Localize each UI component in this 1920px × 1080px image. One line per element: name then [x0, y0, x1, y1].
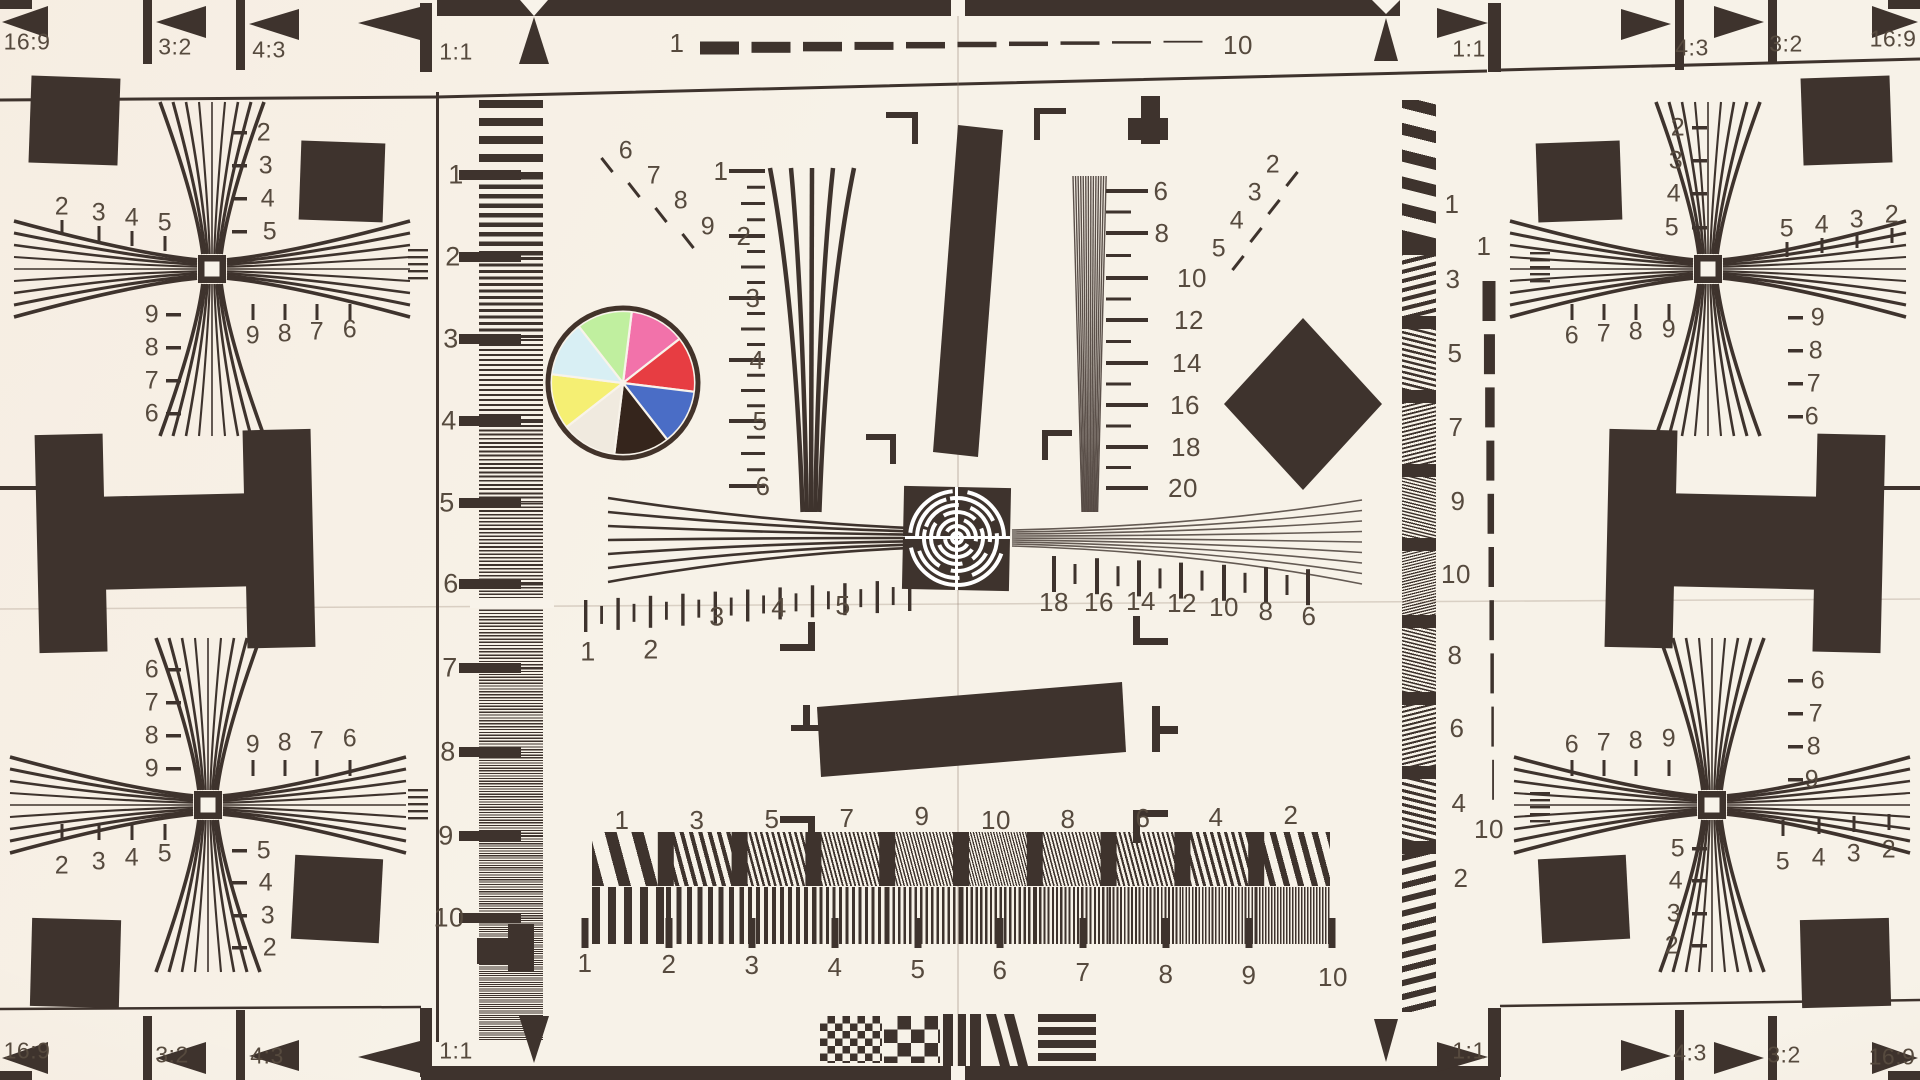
scale-label: 8 — [1155, 220, 1170, 246]
scale-label: 7 — [840, 805, 855, 831]
scale-label: 6 — [1154, 178, 1169, 204]
scale-label: 2 — [1885, 203, 1899, 228]
scale-label: 18 — [1171, 434, 1201, 460]
scale-label: 9 — [246, 733, 260, 758]
scale-label: 2 — [737, 223, 752, 249]
scale-label: 3:2 — [1769, 33, 1802, 56]
scale-label: 5 — [1212, 237, 1226, 262]
scale-label: 3 — [745, 952, 760, 978]
scale-label: 8 — [1448, 642, 1463, 668]
scale-label: 3 — [1847, 842, 1861, 867]
scale-label: 8 — [1061, 806, 1076, 832]
scale-label: 9 — [915, 803, 930, 829]
scale-label: 9 — [438, 823, 454, 850]
scale-label: 10 — [1223, 32, 1253, 58]
scale-label: 16 — [1170, 392, 1200, 418]
scale-label: 2 — [662, 951, 677, 977]
scale-label: 4 — [1812, 846, 1826, 871]
scale-label: 5 — [1671, 837, 1685, 862]
scale-label: 4:3 — [1673, 1042, 1706, 1065]
scale-label: 4 — [261, 187, 275, 212]
scale-label: 7 — [1809, 702, 1823, 727]
scale-label: 2 — [643, 637, 659, 664]
scale-label: 8 — [278, 731, 292, 756]
scale-label: 8 — [1259, 598, 1274, 624]
scale-label: 10 — [1177, 265, 1207, 291]
resolution-test-chart-photo: 1234567891012345668101214161820123451816… — [0, 0, 1920, 1080]
scale-label: 1 — [714, 158, 729, 184]
scale-label: 8 — [1807, 735, 1821, 760]
scale-label: 5 — [158, 842, 172, 867]
scale-label: 3 — [92, 850, 106, 875]
scale-label: 2 — [1454, 865, 1469, 891]
scale-label: 4 — [441, 408, 457, 435]
scale-label: 6 — [443, 571, 459, 598]
scale-label: 6 — [1302, 603, 1317, 629]
scale-label: 4:3 — [250, 1045, 283, 1068]
scale-label: 5 — [753, 408, 768, 434]
scale-label: 4 — [125, 846, 139, 871]
scale-label: 5 — [1780, 217, 1794, 242]
scale-label: 7 — [1597, 731, 1611, 756]
scale-label: 4 — [1667, 182, 1681, 207]
scale-label: 2 — [263, 936, 277, 961]
scale-label: 5 — [911, 956, 926, 982]
scale-label: 2 — [1671, 116, 1685, 141]
scale-label: 5 — [257, 839, 271, 864]
scale-label: 10 — [1318, 964, 1348, 990]
scale-label: 1 — [615, 807, 630, 833]
scale-label: 4 — [1209, 804, 1224, 830]
scale-label: 3 — [709, 604, 725, 631]
scale-label: 1 — [1477, 233, 1492, 259]
scale-label: 9 — [1811, 306, 1825, 331]
scale-label: 6 — [619, 139, 633, 164]
scale-label: 7 — [310, 320, 324, 345]
scale-label: 5 — [263, 220, 277, 245]
scale-label: 1:1 — [1452, 1040, 1485, 1063]
scale-label: 7 — [1807, 372, 1821, 397]
scale-label: 4 — [771, 595, 787, 622]
scale-label: 6 — [1811, 669, 1825, 694]
scale-label: 10 — [981, 807, 1011, 833]
scale-label: 8 — [1809, 339, 1823, 364]
scale-label: 7 — [1449, 414, 1464, 440]
scale-label: 3 — [1446, 266, 1461, 292]
scale-label: 5 — [835, 593, 851, 620]
scale-label: 10 — [433, 905, 464, 932]
scale-label: 9 — [145, 757, 159, 782]
scale-label: 2 — [55, 195, 69, 220]
scale-label: 7 — [145, 691, 159, 716]
scale-label: 4:3 — [1675, 37, 1708, 60]
scale-label: 16:9 — [4, 31, 51, 54]
scale-label: 1 — [578, 950, 593, 976]
scale-label: 7 — [1597, 322, 1611, 347]
scale-label: 3 — [259, 154, 273, 179]
scale-label: 1 — [1445, 191, 1460, 217]
scale-label: 14 — [1126, 588, 1156, 614]
scale-label: 1 — [580, 639, 596, 666]
scale-label: 3 — [690, 807, 705, 833]
scale-label: 9 — [1805, 768, 1819, 793]
scale-label: 2 — [1882, 838, 1896, 863]
scale-label: 6 — [1136, 805, 1151, 831]
scale-label: 7 — [145, 369, 159, 394]
scale-label: 3 — [1248, 181, 1262, 206]
scale-label: 6 — [1565, 733, 1579, 758]
scale-label: 14 — [1172, 350, 1202, 376]
scale-label: 3:2 — [155, 1044, 188, 1067]
scale-label: 7 — [310, 729, 324, 754]
scale-label: 2 — [1284, 802, 1299, 828]
scale-label: 8 — [1629, 320, 1643, 345]
scale-label: 7 — [647, 164, 661, 189]
scale-label: 5 — [158, 211, 172, 236]
scale-label: 9 — [246, 324, 260, 349]
scale-label: 18 — [1039, 589, 1069, 615]
scale-label: 4 — [125, 206, 139, 231]
scale-label: 5 — [439, 490, 455, 517]
scale-label: 3 — [443, 326, 459, 353]
scale-label: 9 — [1662, 318, 1676, 343]
scale-label: 12 — [1167, 590, 1197, 616]
scale-label: 4 — [1669, 869, 1683, 894]
scale-label: 8 — [1159, 961, 1174, 987]
scale-label: 9 — [701, 215, 715, 240]
scale-label: 4 — [259, 871, 273, 896]
scale-label: 3 — [92, 201, 106, 226]
scale-label: 4:3 — [252, 39, 285, 62]
scale-label: 9 — [145, 303, 159, 328]
scale-label: 4 — [1815, 213, 1829, 238]
scale-label: 6 — [756, 473, 771, 499]
scale-label: 8 — [278, 322, 292, 347]
scale-label: 12 — [1174, 307, 1204, 333]
scale-label: 16 — [1084, 589, 1114, 615]
scale-label: 10 — [1474, 816, 1504, 842]
scale-label: 9 — [1662, 727, 1676, 752]
scale-label: 8 — [674, 189, 688, 214]
scale-label: 7 — [442, 655, 458, 682]
scale-label: 6 — [1805, 405, 1819, 430]
scale-label: 10 — [1209, 594, 1239, 620]
scale-label: 4 — [1452, 790, 1467, 816]
scale-label: 3 — [746, 285, 761, 311]
scale-label: 6 — [343, 727, 357, 752]
scale-label: 5 — [1665, 216, 1679, 241]
scale-label: 8 — [145, 336, 159, 361]
scale-label: 9 — [1242, 962, 1257, 988]
scale-label: 6 — [145, 402, 159, 427]
scale-label: 6 — [1565, 324, 1579, 349]
scale-label: 3 — [261, 904, 275, 929]
scale-label: 2 — [445, 244, 461, 271]
scale-label: 1:1 — [1452, 38, 1485, 61]
scale-label: 3 — [1667, 902, 1681, 927]
scale-label: 5 — [765, 806, 780, 832]
scale-label: 4 — [1230, 209, 1244, 234]
chart-number-labels: 1234567891012345668101214161820123451816… — [0, 0, 1920, 1080]
scale-label: 7 — [1076, 959, 1091, 985]
scale-label: 1 — [670, 30, 685, 56]
scale-label: 8 — [1629, 729, 1643, 754]
scale-label: 4 — [750, 347, 765, 373]
scale-label: 8 — [440, 739, 456, 766]
scale-label: 6 — [993, 957, 1008, 983]
scale-label: 5 — [1776, 850, 1790, 875]
scale-label: 4 — [828, 954, 843, 980]
scale-label: 9 — [1451, 488, 1466, 514]
scale-label: 2 — [1665, 934, 1679, 959]
scale-label: 16:9 — [1870, 28, 1917, 51]
scale-label: 2 — [257, 121, 271, 146]
scale-label: 6 — [343, 318, 357, 343]
scale-label: 2 — [1266, 153, 1280, 178]
scale-label: 10 — [1441, 561, 1471, 587]
scale-label: 6 — [145, 658, 159, 683]
scale-label: 2 — [55, 854, 69, 879]
scale-label: 16:9 — [1869, 1046, 1916, 1069]
scale-label: 3:2 — [1767, 1044, 1800, 1067]
scale-label: 3:2 — [158, 36, 191, 59]
scale-label: 16:9 — [4, 1040, 51, 1063]
scale-label: 8 — [145, 724, 159, 749]
scale-label: 1:1 — [439, 1040, 472, 1063]
scale-label: 6 — [1450, 715, 1465, 741]
scale-label: 1:1 — [439, 41, 472, 64]
scale-label: 1 — [448, 162, 464, 189]
scale-label: 5 — [1448, 340, 1463, 366]
scale-label: 3 — [1669, 149, 1683, 174]
scale-label: 3 — [1850, 208, 1864, 233]
scale-label: 20 — [1168, 475, 1198, 501]
